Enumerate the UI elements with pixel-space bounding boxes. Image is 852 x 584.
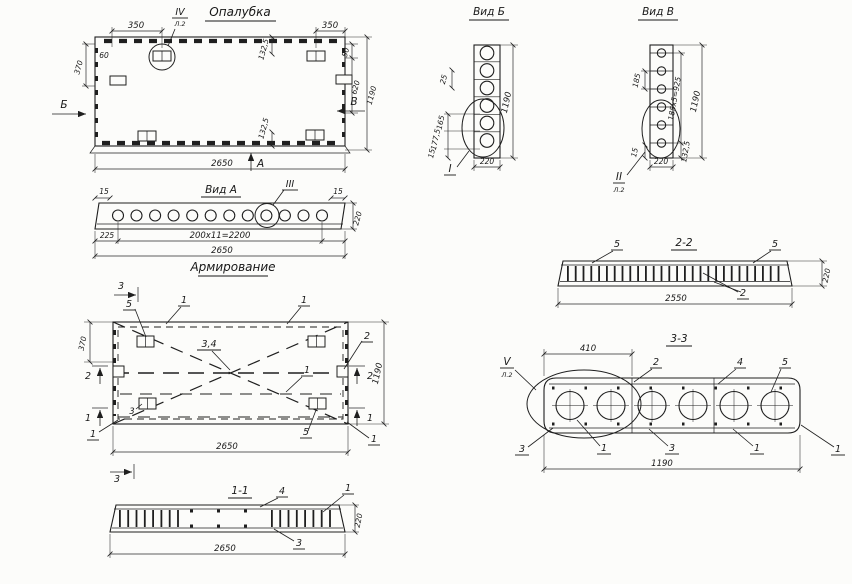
section-2-2: 2-2 5 5 2 2550 220 (558, 237, 832, 308)
view-v-dim-bolts: 185х5=925 (666, 76, 683, 121)
reinf-dim-1190: 1190 (371, 362, 385, 385)
view-a-dim-2650: 2650 (211, 246, 233, 256)
view-b-dim-1190: 1190 (500, 91, 514, 114)
pos-1-top-left: 1 (181, 295, 187, 306)
section-1-1: 1-1 4 1 3 2650 220 (110, 483, 364, 558)
section-3-3-title: 3-3 (670, 333, 687, 345)
detail-ii-sheet: Л.2 (612, 186, 624, 194)
pos-1-mid: 1 (754, 443, 760, 454)
cut-1-right: 1 (367, 413, 373, 424)
s11-dim-2650: 2650 (214, 544, 236, 554)
s11-dim-220: 220 (353, 512, 365, 528)
cut-3-bottom: 3 (114, 474, 120, 485)
formwork-dim-50: 50 (340, 46, 351, 58)
formwork-dim-350-right: 350 (322, 21, 338, 31)
formwork-plan: Опалубка IV Л.2 350 350 60 370 50 620 11… (52, 5, 378, 173)
view-v-dim-15: 15 (629, 147, 640, 158)
pos-2: 2 (364, 331, 370, 342)
reinf-dim-370: 370 (77, 335, 89, 351)
pos-1-right: 1 (835, 444, 841, 455)
detail-v-label: V (503, 356, 511, 368)
s33-dim-410: 410 (580, 344, 596, 354)
s22-dim-2550: 2550 (665, 294, 687, 304)
pos-5-top: 5 (126, 299, 132, 310)
view-b-dim-25: 25 (438, 73, 449, 85)
pos-1: 1 (345, 483, 351, 494)
view-v-title: Вид В (642, 6, 674, 18)
detail-i-label: I (448, 163, 451, 175)
view-a-dim-15-right: 15 (333, 187, 343, 196)
view-a-title: Вид А (205, 184, 237, 196)
void-circles (552, 389, 793, 422)
formwork-bottom-band (90, 146, 350, 153)
cut-3-top: 3 (118, 281, 124, 292)
s22-dim-220: 220 (821, 267, 833, 283)
detail-iv-sheet: Л.2 (173, 20, 185, 28)
cut-2-left: 2 (85, 371, 91, 382)
pos-3-plate: 3 (129, 407, 134, 417)
pos-5: 5 (782, 357, 788, 368)
embed-plate (337, 366, 348, 377)
view-arrow-v: В (350, 96, 357, 108)
detail-ii-label: II (616, 171, 622, 183)
pos-3-4: 3,4 (201, 339, 216, 350)
view-v-dim-185: 185 (631, 72, 643, 88)
pos-3-mid: 3 (669, 443, 675, 454)
view-b: Вид Б 1190 25 165 177,5 15 220 I (426, 6, 518, 175)
pos-1-bottom-left: 1 (90, 429, 96, 440)
formwork-title: Опалубка (209, 5, 270, 19)
detail-v-sheet: Л.2 (500, 371, 512, 379)
formwork-dim-60: 60 (99, 51, 109, 60)
section-3-3: 3-3 V Л.2 410 2 4 5 3 1 3 1 1 1190 (500, 333, 845, 473)
embed-plate (113, 366, 124, 377)
pos-3-left: 3 (519, 444, 525, 455)
s33-dim-1190: 1190 (651, 459, 673, 469)
pos-2: 2 (653, 357, 659, 368)
view-b-webs (474, 62, 500, 132)
formwork-dim-370: 370 (72, 59, 84, 75)
technical-drawing: Опалубка IV Л.2 350 350 60 370 50 620 11… (0, 0, 852, 584)
section-2-2-title: 2-2 (675, 237, 692, 249)
pos-5-right: 5 (772, 239, 778, 250)
view-a-dim-holes: 200х11=2200 (190, 231, 251, 241)
view-b-dim-165: 165 (435, 114, 447, 130)
view-arrow-b: Б (60, 99, 67, 111)
formwork-dim-132-bottom: 132,5 (256, 117, 270, 140)
pos-1-top-right: 1 (301, 295, 307, 306)
reinforcement-plan: Армирование 3 3 2 2 1 1 5 1 1 2 3,4 1 3 (77, 260, 389, 485)
pos-2: 2 (740, 288, 746, 299)
view-a-outline (95, 203, 345, 229)
detail-iii-label: III (286, 179, 295, 190)
reinf-dim-2650: 2650 (216, 442, 238, 452)
reinforcement-title: Армирование (189, 260, 275, 274)
detail-iv-label: IV (175, 7, 186, 18)
drawing-sheet: Опалубка IV Л.2 350 350 60 370 50 620 11… (0, 0, 852, 584)
view-b-dim-220: 220 (480, 157, 495, 166)
view-a-dim-225: 225 (100, 231, 115, 240)
pos-4: 4 (279, 486, 285, 497)
embed-plate (336, 75, 352, 84)
view-a-dim-15-left: 15 (99, 187, 109, 196)
pos-3: 3 (296, 538, 302, 549)
cut-1-left: 1 (85, 413, 91, 424)
view-arrow-a: А (256, 158, 264, 170)
formwork-dim-2650: 2650 (211, 159, 233, 169)
view-v-dim-1190: 1190 (689, 90, 703, 113)
view-v: Вид В 185х5=925 132,5 1190 185 15 220 II… (612, 6, 707, 194)
view-b-dim-177: 177,5 (429, 128, 442, 151)
formwork-dim-350-left: 350 (128, 21, 144, 31)
embed-plate (110, 76, 126, 85)
pos-5-bottom: 5 (303, 427, 309, 438)
pos-1-mid-right: 1 (304, 365, 310, 376)
view-a: Вид А III 15 15 225 200х11=2200 2650 220 (95, 179, 364, 259)
section-1-1-title: 1-1 (231, 485, 248, 497)
pos-4: 4 (737, 357, 743, 368)
pos-1-bottom-right: 1 (371, 434, 377, 445)
pos-5-left: 5 (614, 239, 620, 250)
view-a-holes (113, 210, 328, 221)
view-b-title: Вид Б (473, 6, 505, 18)
pos-1-left: 1 (601, 443, 607, 454)
